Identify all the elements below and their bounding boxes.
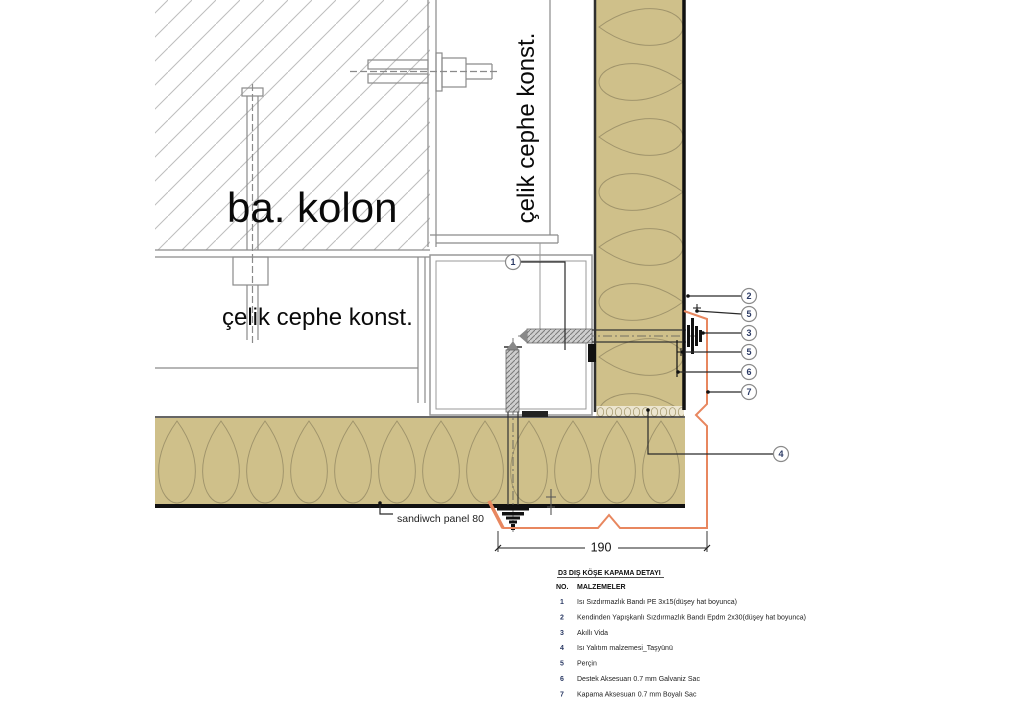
legend-item-no: 7 (560, 691, 564, 698)
legend: D3 DIŞ KÖŞE KAPAMA DETAYI NO. MALZEMELER… (556, 568, 806, 698)
legend-item-text: Kendinden Yapışkanlı Sızdırmazlık Bandı … (577, 614, 806, 621)
beam-step-lines (430, 235, 558, 243)
legend-item-no: 3 (560, 630, 564, 637)
mineral-wool-strip (596, 406, 684, 418)
callout-number-4: 4 (778, 449, 783, 459)
legend-item-no: 6 (560, 676, 564, 683)
vertical-panel-wool (596, 0, 684, 410)
callout-number-7: 7 (746, 387, 751, 397)
legend-title: D3 DIŞ KÖŞE KAPAMA DETAYI (558, 568, 661, 577)
legend-item-no: 1 (560, 599, 564, 606)
dim-value: 190 (591, 541, 612, 555)
h-screw-thread (527, 329, 592, 343)
column-bottom-edge (155, 250, 430, 257)
legend-item-no: 2 (560, 614, 564, 621)
legend-item-text: Destek Aksesuarı 0.7 mm Galvaniz Sac (577, 676, 700, 683)
callout-number-5b: 5 (746, 347, 751, 357)
drawing-svg: 1 2 5 3 5 6 7 4 190 ba. kolon çelik ceph… (0, 0, 1024, 728)
callout-number-3: 3 (746, 328, 751, 338)
legend-item-no: 5 (560, 661, 564, 668)
lower-nut (233, 257, 268, 285)
cad-corner-detail-drawing: 1 2 5 3 5 6 7 4 190 ba. kolon çelik ceph… (0, 0, 1024, 728)
leader-callout-5a (697, 311, 742, 314)
facade-label-horizontal: çelik cephe konst. (222, 304, 413, 331)
horizontal-panel-wool (155, 418, 685, 506)
callout-number-1: 1 (510, 257, 515, 267)
callout-number-5a: 5 (746, 309, 751, 319)
legend-item-text: Kapama Aksesuarı 0.7 mm Boyalı Sac (577, 691, 697, 698)
bolt-shank (466, 64, 492, 79)
girt-vertical (418, 257, 425, 403)
callout-number-6: 6 (746, 367, 751, 377)
legend-header-no: NO. (556, 584, 569, 591)
legend-header-materials: MALZEMELER (577, 584, 626, 591)
callout-number-2: 2 (746, 291, 751, 301)
sealing-band-bottom (522, 411, 548, 417)
legend-item-text: Isı Yalıtım malzemesi_Taşyünü (577, 645, 673, 652)
v-screw-thread (506, 350, 519, 412)
legend-item-no: 4 (560, 645, 564, 652)
dimension-190: 190 (495, 531, 710, 555)
column-label: ba. kolon (227, 184, 397, 231)
legend-item-text: Akıllı Vida (577, 630, 608, 637)
legend-item-text: Isı Sızdırmazlık Bandı PE 3x15(düşey hat… (577, 599, 737, 606)
panel-note-label: sandiwch panel 80 (397, 513, 484, 525)
facade-label-vertical: çelik cephe konst. (513, 33, 540, 224)
legend-item-text: Perçin (577, 661, 597, 668)
bolt-nut (442, 58, 466, 87)
sealing-band-vertical (588, 344, 596, 362)
h-screw-head-stack (683, 318, 702, 354)
